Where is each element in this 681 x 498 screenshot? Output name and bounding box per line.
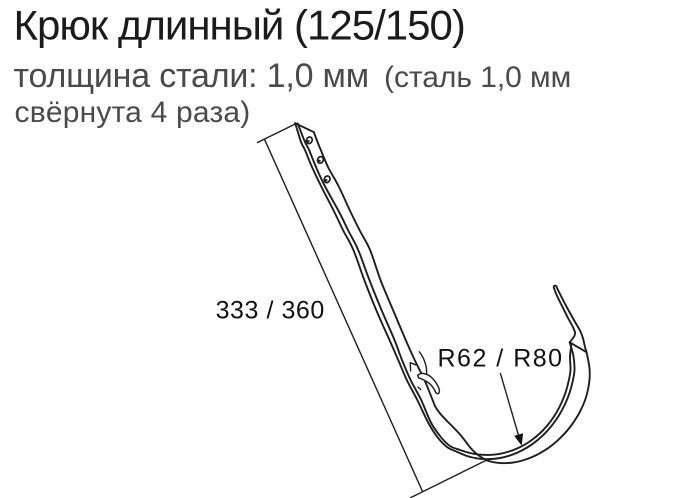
svg-text:толщина стали: 1,0 мм: толщина стали: 1,0 мм xyxy=(14,57,369,95)
svg-text:(сталь 1,0 мм: (сталь 1,0 мм xyxy=(384,61,571,94)
svg-text:свёрнута 4 раза): свёрнута 4 раза) xyxy=(15,96,251,129)
svg-text:R62 / R80: R62 / R80 xyxy=(438,345,564,373)
svg-text:333 / 360: 333 / 360 xyxy=(216,297,325,325)
svg-text:Крюк длинный (125/150): Крюк длинный (125/150) xyxy=(14,2,465,49)
